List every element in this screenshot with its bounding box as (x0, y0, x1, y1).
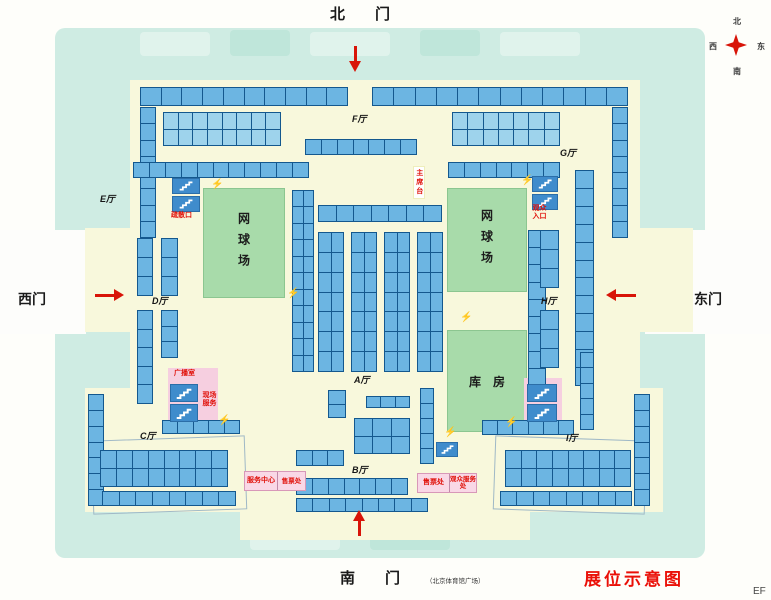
booth-cell (615, 469, 630, 486)
booth-cell (208, 113, 222, 129)
booth-cell (297, 451, 312, 465)
west-gate-label: 西门 (18, 289, 46, 309)
service-box-label: 观众服务处 (450, 476, 476, 490)
power-icon: ⚡ (521, 176, 533, 186)
corner-text: EF (753, 586, 766, 597)
booth-cell (522, 451, 537, 468)
booth-cell (431, 253, 443, 272)
booth-cell (162, 258, 177, 276)
booth-cell (576, 261, 593, 278)
booth-cell (212, 469, 227, 486)
booth-cell (544, 421, 558, 434)
booth-cell (352, 233, 364, 252)
booth-cell (352, 352, 364, 371)
booth-cell (522, 469, 537, 486)
booth-strip (163, 112, 281, 146)
booth-cell (261, 163, 276, 177)
booth-cell (379, 499, 394, 511)
booth-cell (465, 163, 480, 177)
service-box-label: 服务中心 (245, 477, 277, 485)
booth-strip (100, 450, 228, 487)
booth-strip (161, 310, 178, 358)
booth-cell (138, 348, 152, 366)
booth-cell (89, 490, 103, 505)
booth-cell (581, 368, 593, 382)
booth-cell (483, 421, 497, 434)
booth-cell (635, 490, 649, 505)
booth-cell (103, 492, 119, 505)
booth-cell (468, 113, 482, 129)
booth-cell (332, 293, 344, 312)
booth-cell (252, 113, 266, 129)
booth-cell (418, 293, 430, 312)
gate-arrow-down (349, 46, 361, 72)
booth-strip (384, 232, 410, 372)
booth-cell (541, 231, 558, 249)
booth-cell (304, 306, 314, 321)
booth-cell (164, 113, 178, 129)
booth-cell (385, 352, 397, 371)
hall-label-G: G厅 (560, 146, 576, 159)
ground-patch (140, 32, 210, 56)
booth-cell (576, 243, 593, 260)
booth-cell (141, 206, 155, 221)
booth-cell (182, 88, 202, 105)
booth-cell (541, 349, 558, 367)
booth-cell (179, 130, 193, 146)
booth-cell (499, 113, 513, 129)
booth-cell (553, 469, 568, 486)
red-label: 主席台 (413, 166, 425, 199)
booth-strip (420, 388, 434, 464)
booth-cell (635, 395, 649, 410)
booth-cell (522, 88, 542, 105)
booth-cell (479, 88, 499, 105)
booth-cell (162, 88, 182, 105)
area-tennis-left: 网球场 (203, 188, 285, 298)
stairs-icon (172, 196, 200, 212)
booth-cell (398, 273, 410, 292)
booth-cell (214, 163, 229, 177)
service-box: 售票处观众服务处 (417, 473, 477, 493)
booth-cell (293, 224, 303, 239)
ground-patch (420, 30, 480, 56)
booth-cell (385, 140, 400, 154)
booth-cell (398, 253, 410, 272)
hall-label-D: D厅 (152, 294, 168, 307)
booth-cell (101, 469, 116, 486)
booth-cell (458, 88, 478, 105)
booth-cell (613, 189, 627, 204)
service-box-label: 售票处 (278, 478, 305, 485)
booth-cell (332, 352, 344, 371)
booth-cell (613, 124, 627, 139)
booth-cell (385, 312, 397, 331)
booth-cell (600, 451, 615, 468)
booth-cell (304, 224, 314, 239)
arrow-head (606, 289, 616, 301)
booth-cell (421, 389, 433, 403)
booth-cell (576, 314, 593, 331)
stairs-icon (527, 384, 557, 402)
booth-cell (541, 269, 558, 287)
booth-strip (318, 232, 344, 372)
booth-cell (529, 421, 543, 434)
booth-cell (313, 451, 328, 465)
booth-cell (265, 88, 285, 105)
booth-cell (499, 130, 513, 146)
hall-label-F: F厅 (352, 112, 367, 125)
booth-cell (541, 311, 558, 329)
booth-cell (180, 451, 195, 468)
booth-cell (332, 332, 344, 351)
booth-cell (89, 395, 103, 410)
booth-cell (635, 458, 649, 473)
booth-cell (407, 206, 424, 221)
booth-cell (431, 332, 443, 351)
booth-cell (381, 397, 394, 407)
stairs-icon (170, 404, 198, 422)
booth-cell (569, 469, 584, 486)
booth-cell (180, 469, 195, 486)
booth-cell (306, 140, 321, 154)
booth-strip (580, 352, 594, 430)
booth-cell (584, 451, 599, 468)
booth-cell (468, 130, 482, 146)
booth-cell (376, 479, 391, 494)
booth-cell (369, 140, 384, 154)
booth-cell (514, 113, 528, 129)
booth-strip (417, 232, 443, 372)
booth-cell (398, 233, 410, 252)
booth-cell (576, 207, 593, 224)
booth-cell (501, 88, 521, 105)
booth-cell (186, 492, 202, 505)
booth-cell (385, 332, 397, 351)
booth-cell (319, 206, 336, 221)
booth-cell (319, 273, 331, 292)
booth-cell (401, 140, 416, 154)
booth-cell (449, 163, 464, 177)
arrow-shaft (616, 294, 636, 297)
booth-cell (543, 88, 563, 105)
booth-cell (304, 339, 314, 354)
booth-cell (576, 189, 593, 206)
booth-cell (541, 250, 558, 268)
booth-strip (140, 87, 348, 106)
booth-strip (372, 87, 628, 106)
booth-cell (373, 419, 390, 436)
booth-cell (138, 311, 152, 329)
booth-cell (133, 451, 148, 468)
booth-cell (319, 293, 331, 312)
booth-cell (586, 88, 606, 105)
booth-cell (418, 253, 430, 272)
building-west-wing (85, 228, 145, 332)
booth-cell (208, 130, 222, 146)
booth-cell (481, 163, 496, 177)
service-box-label: 售票处 (418, 479, 449, 487)
service-box: 服务中心售票处 (244, 471, 306, 491)
booth-cell (421, 419, 433, 433)
booth-strip (505, 450, 631, 487)
booth-strip (296, 450, 344, 466)
booth-cell (607, 88, 627, 105)
booth-cell (545, 113, 559, 129)
arrow-shaft (354, 46, 357, 62)
booth-cell (352, 312, 364, 331)
booth-cell (138, 239, 152, 257)
stairs-icon (172, 178, 200, 194)
booth-cell (162, 342, 177, 357)
booth-cell (421, 434, 433, 448)
booth-cell (613, 108, 627, 123)
floor-plan-canvas: 北 门 南 门 （北京体育馆广场） 西门 东门 北 南 西 东 展位示意图 EF… (0, 0, 771, 600)
booth-cell (365, 352, 377, 371)
booth-strip (318, 205, 442, 222)
booth-strip (161, 238, 178, 296)
booth-cell (304, 290, 314, 305)
booth-cell (418, 312, 430, 331)
booth-cell (304, 356, 314, 371)
booth-cell (553, 451, 568, 468)
booth-cell (134, 163, 149, 177)
area-label-tennis-right: 网球场 (479, 209, 496, 272)
booth-cell (198, 163, 213, 177)
area-label-tennis-left: 网球场 (236, 212, 253, 275)
booth-cell (293, 356, 303, 371)
booth-cell (506, 451, 521, 468)
booth-cell (193, 130, 207, 146)
booth-cell (385, 253, 397, 272)
booth-cell (395, 499, 410, 511)
booth-cell (352, 273, 364, 292)
booth-cell (431, 312, 443, 331)
booth-strip (292, 190, 314, 372)
booth-cell (150, 163, 165, 177)
booth-strip (500, 491, 632, 506)
booth-cell (332, 233, 344, 252)
booth-cell (330, 499, 345, 511)
booth-cell (162, 327, 177, 342)
booth-cell (613, 222, 627, 237)
booth-cell (534, 492, 549, 505)
booth-cell (453, 113, 467, 129)
booth-cell (418, 233, 430, 252)
booth-cell (149, 469, 164, 486)
booth-cell (224, 88, 244, 105)
power-icon: ⚡ (460, 313, 472, 323)
booth-cell (514, 130, 528, 146)
arrow-head (353, 510, 365, 521)
booth-cell (293, 273, 303, 288)
booth-cell (484, 130, 498, 146)
booth-cell (141, 189, 155, 204)
arrow-head (114, 289, 124, 301)
booth-cell (141, 108, 155, 123)
booth-cell (392, 437, 409, 454)
booth-cell (352, 293, 364, 312)
booth-cell (133, 469, 148, 486)
booth-cell (421, 449, 433, 463)
booth-strip (305, 139, 417, 155)
booth-cell (329, 405, 345, 418)
booth-cell (437, 88, 457, 105)
booth-cell (564, 88, 584, 105)
booth-cell (164, 130, 178, 146)
booth-cell (319, 233, 331, 252)
ground-patch (500, 32, 580, 56)
red-label: 疏散口 (171, 212, 192, 220)
booth-cell (166, 163, 181, 177)
booth-cell (138, 385, 152, 403)
booth-cell (141, 141, 155, 156)
booth-cell (431, 233, 443, 252)
building-east-wing (625, 228, 693, 332)
booth-cell (355, 419, 372, 436)
booth-cell (385, 233, 397, 252)
booth-cell (237, 113, 251, 129)
booth-cell (365, 332, 377, 351)
booth-cell (613, 157, 627, 172)
power-icon: ⚡ (287, 289, 299, 299)
booth-cell (529, 130, 543, 146)
power-icon: ⚡ (444, 428, 456, 438)
booth-cell (266, 113, 280, 129)
booth-cell (354, 140, 369, 154)
booth-cell (329, 479, 344, 494)
booth-strip (137, 238, 153, 296)
booth-cell (117, 469, 132, 486)
booth-cell (162, 311, 177, 326)
booth-strip (102, 491, 236, 506)
compass-north: 北 (733, 16, 741, 27)
stairs-icon (532, 176, 558, 192)
booth-cell (398, 312, 410, 331)
west-gate-corridor (0, 230, 86, 334)
arrow-head (349, 61, 361, 72)
booth-cell (418, 352, 430, 371)
booth-cell (319, 332, 331, 351)
gate-arrow-right (95, 289, 125, 301)
booth-strip (296, 478, 408, 495)
booth-cell (367, 397, 380, 407)
booth-cell (266, 130, 280, 146)
booth-cell (365, 233, 377, 252)
booth-cell (576, 278, 593, 295)
booth-cell (293, 323, 303, 338)
booth-cell (569, 451, 584, 468)
booth-cell (392, 419, 409, 436)
booth-cell (149, 451, 164, 468)
booth-cell (203, 88, 223, 105)
hall-label-A: A厅 (354, 373, 370, 386)
booth-cell (141, 88, 161, 105)
booth-cell (178, 421, 192, 433)
stairs-icon (436, 442, 458, 457)
booth-cell (313, 479, 328, 494)
red-label: 现场服务 (201, 392, 218, 407)
power-icon: ⚡ (505, 418, 517, 428)
booth-cell (245, 163, 260, 177)
booth-cell (245, 88, 265, 105)
booth-cell (600, 469, 615, 486)
booth-cell (162, 239, 177, 257)
hall-label-B: B厅 (352, 463, 368, 476)
booth-cell (416, 88, 436, 105)
power-icon: ⚡ (218, 416, 230, 426)
booth-cell (327, 88, 347, 105)
booth-cell (120, 492, 136, 505)
booth-cell (332, 253, 344, 272)
booth-cell (576, 171, 593, 188)
booth-cell (293, 207, 303, 222)
booth-cell (304, 323, 314, 338)
booth-cell (385, 273, 397, 292)
booth-strip (354, 418, 410, 454)
booth-cell (138, 277, 152, 295)
booth-cell (506, 469, 521, 486)
booth-cell (89, 427, 103, 442)
booth-cell (304, 240, 314, 255)
booth-cell (398, 352, 410, 371)
booth-cell (354, 206, 371, 221)
booth-cell (138, 330, 152, 348)
booth-cell (576, 225, 593, 242)
booth-cell (138, 367, 152, 385)
booth-cell (613, 173, 627, 188)
booth-strip (366, 396, 410, 408)
booth-cell (529, 369, 545, 385)
booth-cell (360, 479, 375, 494)
booth-cell (355, 437, 372, 454)
booth-cell (581, 353, 593, 367)
booth-cell (615, 451, 630, 468)
booth-cell (352, 253, 364, 272)
booth-cell (293, 339, 303, 354)
booth-cell (293, 163, 308, 177)
booth-cell (635, 411, 649, 426)
booth-cell (398, 293, 410, 312)
booth-cell (541, 330, 558, 348)
booth-cell (322, 140, 337, 154)
booth-cell (613, 141, 627, 156)
booth-cell (277, 163, 292, 177)
east-gate-label: 东门 (694, 289, 722, 309)
booth-cell (304, 273, 314, 288)
booth-strip (482, 420, 574, 435)
booth-cell (319, 253, 331, 272)
booth-cell (332, 273, 344, 292)
booth-cell (398, 332, 410, 351)
booth-cell (365, 273, 377, 292)
page-title: 展位示意图 (584, 565, 684, 590)
booth-cell (203, 492, 219, 505)
booth-cell (196, 451, 211, 468)
booth-cell (431, 293, 443, 312)
booth-cell (517, 492, 532, 505)
booth-cell (293, 191, 303, 206)
booth-cell (182, 163, 197, 177)
booth-cell (576, 296, 593, 313)
booth-cell (385, 293, 397, 312)
booth-cell (165, 469, 180, 486)
booth-cell (616, 492, 631, 505)
booth-cell (365, 312, 377, 331)
arrow-shaft (95, 294, 115, 297)
booth-cell (89, 411, 103, 426)
booth-strip (612, 107, 628, 238)
